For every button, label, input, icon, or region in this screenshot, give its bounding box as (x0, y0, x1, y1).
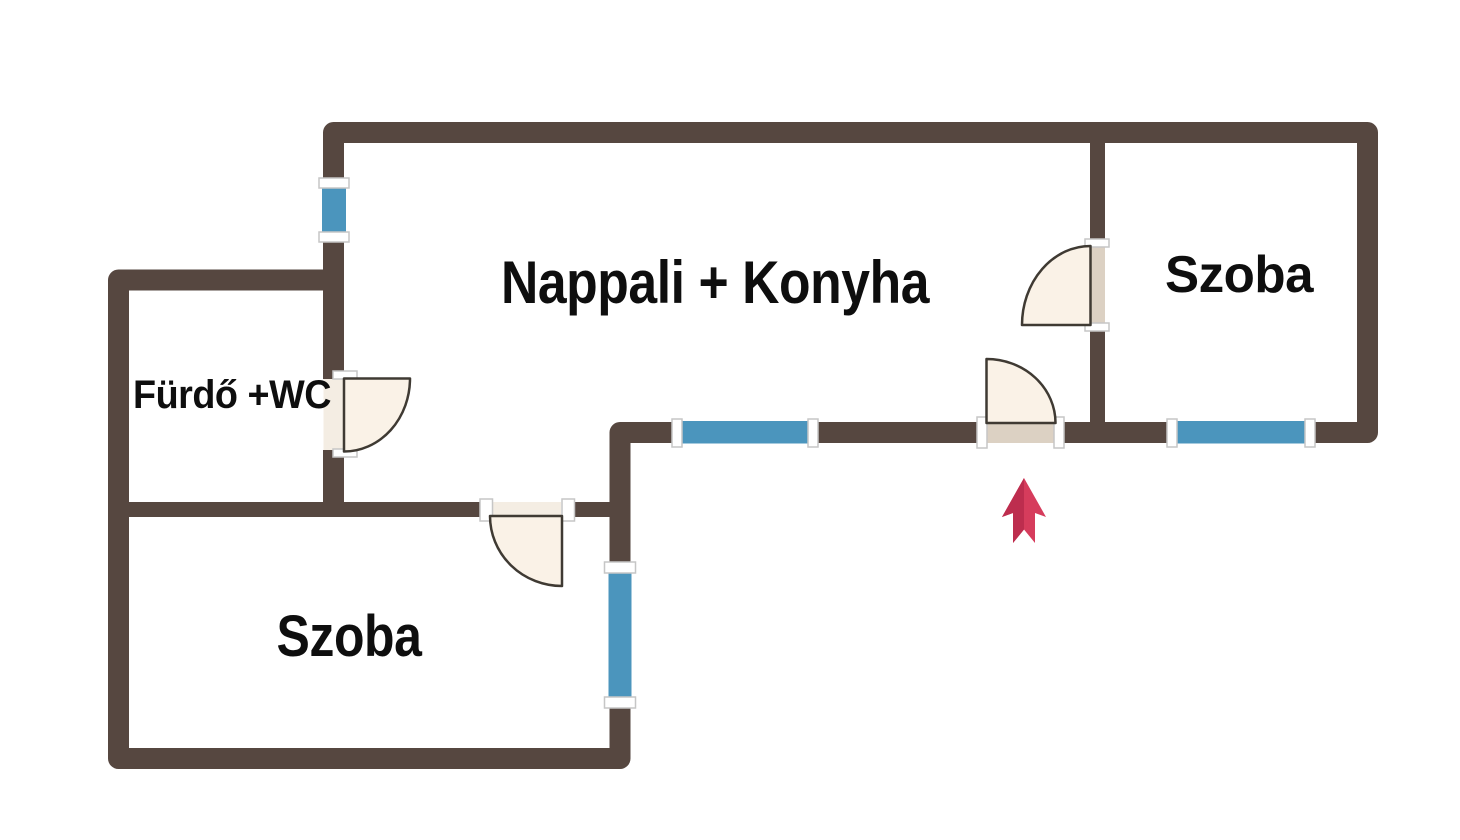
window-frame-cap (808, 419, 818, 447)
bedroom-right-window (1175, 421, 1307, 444)
entrance-door-leaf (987, 423, 1055, 443)
window-frame-cap (1167, 419, 1177, 447)
living-room-left-window (322, 185, 346, 235)
entrance-door-arc (987, 359, 1056, 423)
window-frame-cap (1305, 419, 1315, 447)
room-labels: Nappali + Konyha Fürdő +WC Szoba Szoba (133, 246, 1315, 669)
bedroom-left-window (609, 570, 632, 700)
room-label-bathroom: Fürdő +WC (133, 373, 331, 417)
door-frame-cap (562, 499, 575, 521)
living-room-bottom-window (680, 421, 810, 444)
entrance-arrow-shade (1002, 478, 1024, 543)
bedroom-right-door-leaf (1090, 247, 1105, 323)
window-frame-cap (605, 562, 636, 573)
bathroom-door-arc (344, 379, 410, 452)
window-frame-cap (605, 697, 636, 708)
window-frame-cap (672, 419, 682, 447)
window-frame-cap (319, 178, 349, 188)
bedroom-left-door-sill (493, 502, 561, 517)
room-label-bedroom-right: Szoba (1165, 246, 1315, 304)
floor-plan: Nappali + Konyha Fürdő +WC Szoba Szoba (0, 0, 1460, 840)
room-label-bedroom-left: Szoba (277, 604, 423, 669)
bedroom-right-door-arc (1022, 246, 1091, 325)
window-frame-cap (319, 232, 349, 242)
entrance-arrow (1002, 478, 1046, 543)
room-label-living-kitchen: Nappali + Konyha (501, 249, 930, 316)
floor-plan-canvas: Nappali + Konyha Fürdő +WC Szoba Szoba (0, 0, 1460, 840)
bedroom-left-door-arc (490, 516, 562, 586)
